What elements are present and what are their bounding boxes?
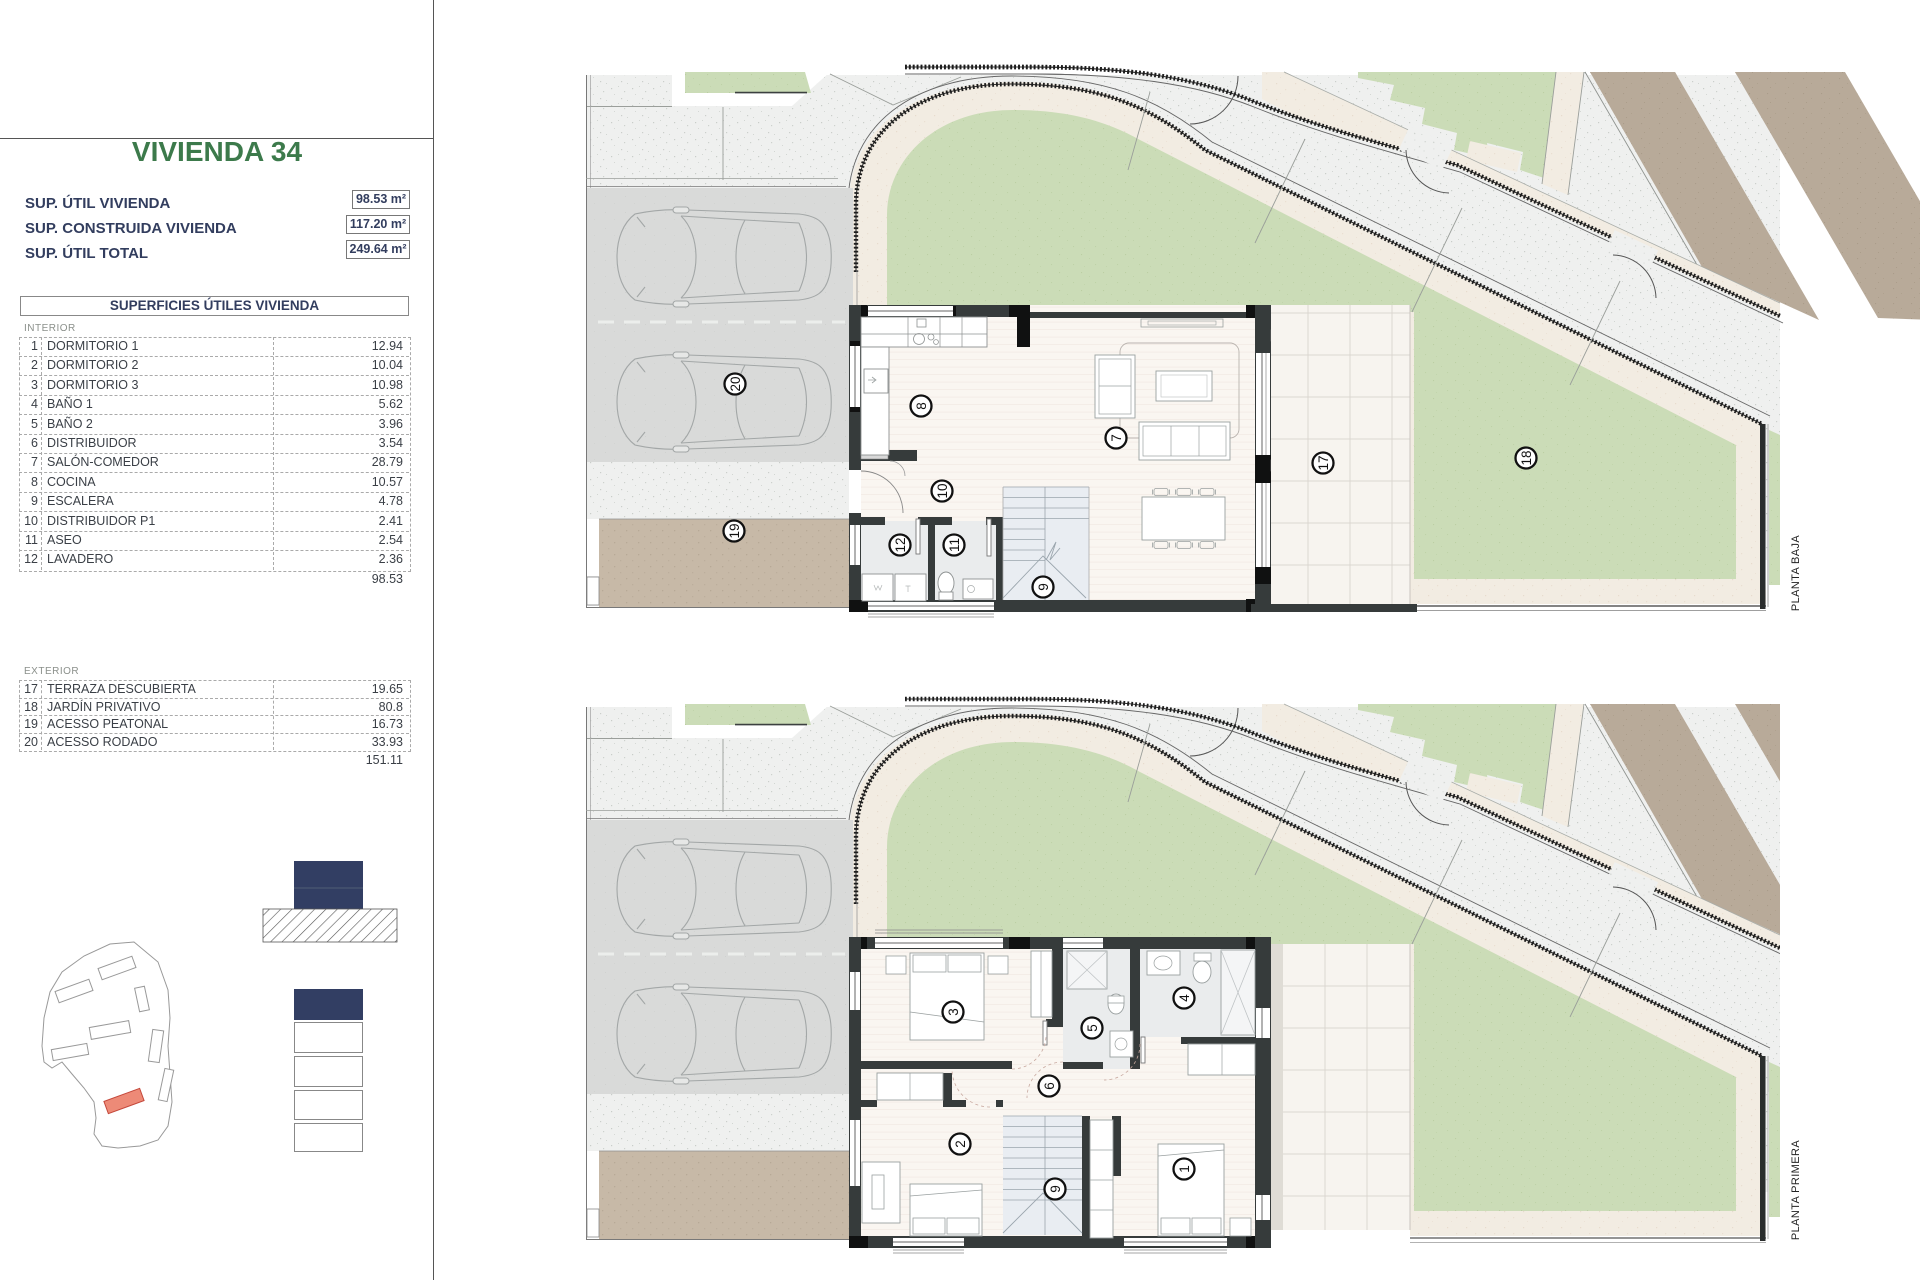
svg-text:4: 4 <box>1177 994 1192 1002</box>
svg-text:3: 3 <box>946 1008 961 1016</box>
svg-text:11: 11 <box>947 538 962 552</box>
svg-text:5: 5 <box>1085 1024 1100 1032</box>
svg-text:PLANTA PRIMERA: PLANTA PRIMERA <box>1790 1140 1802 1240</box>
svg-text:9: 9 <box>1048 1185 1063 1193</box>
svg-text:6: 6 <box>1042 1082 1057 1090</box>
svg-text:2: 2 <box>953 1140 968 1148</box>
svg-text:9: 9 <box>1036 583 1051 591</box>
svg-text:7: 7 <box>1109 434 1124 442</box>
svg-text:10: 10 <box>935 483 950 498</box>
svg-text:19: 19 <box>727 523 742 538</box>
svg-text:12: 12 <box>893 537 908 552</box>
svg-text:PLANTA BAJA: PLANTA BAJA <box>1790 535 1802 612</box>
svg-text:18: 18 <box>1519 450 1534 465</box>
svg-text:8: 8 <box>914 402 929 410</box>
svg-text:1: 1 <box>1177 1165 1192 1173</box>
svg-text:17: 17 <box>1316 455 1331 470</box>
svg-text:20: 20 <box>728 376 743 391</box>
